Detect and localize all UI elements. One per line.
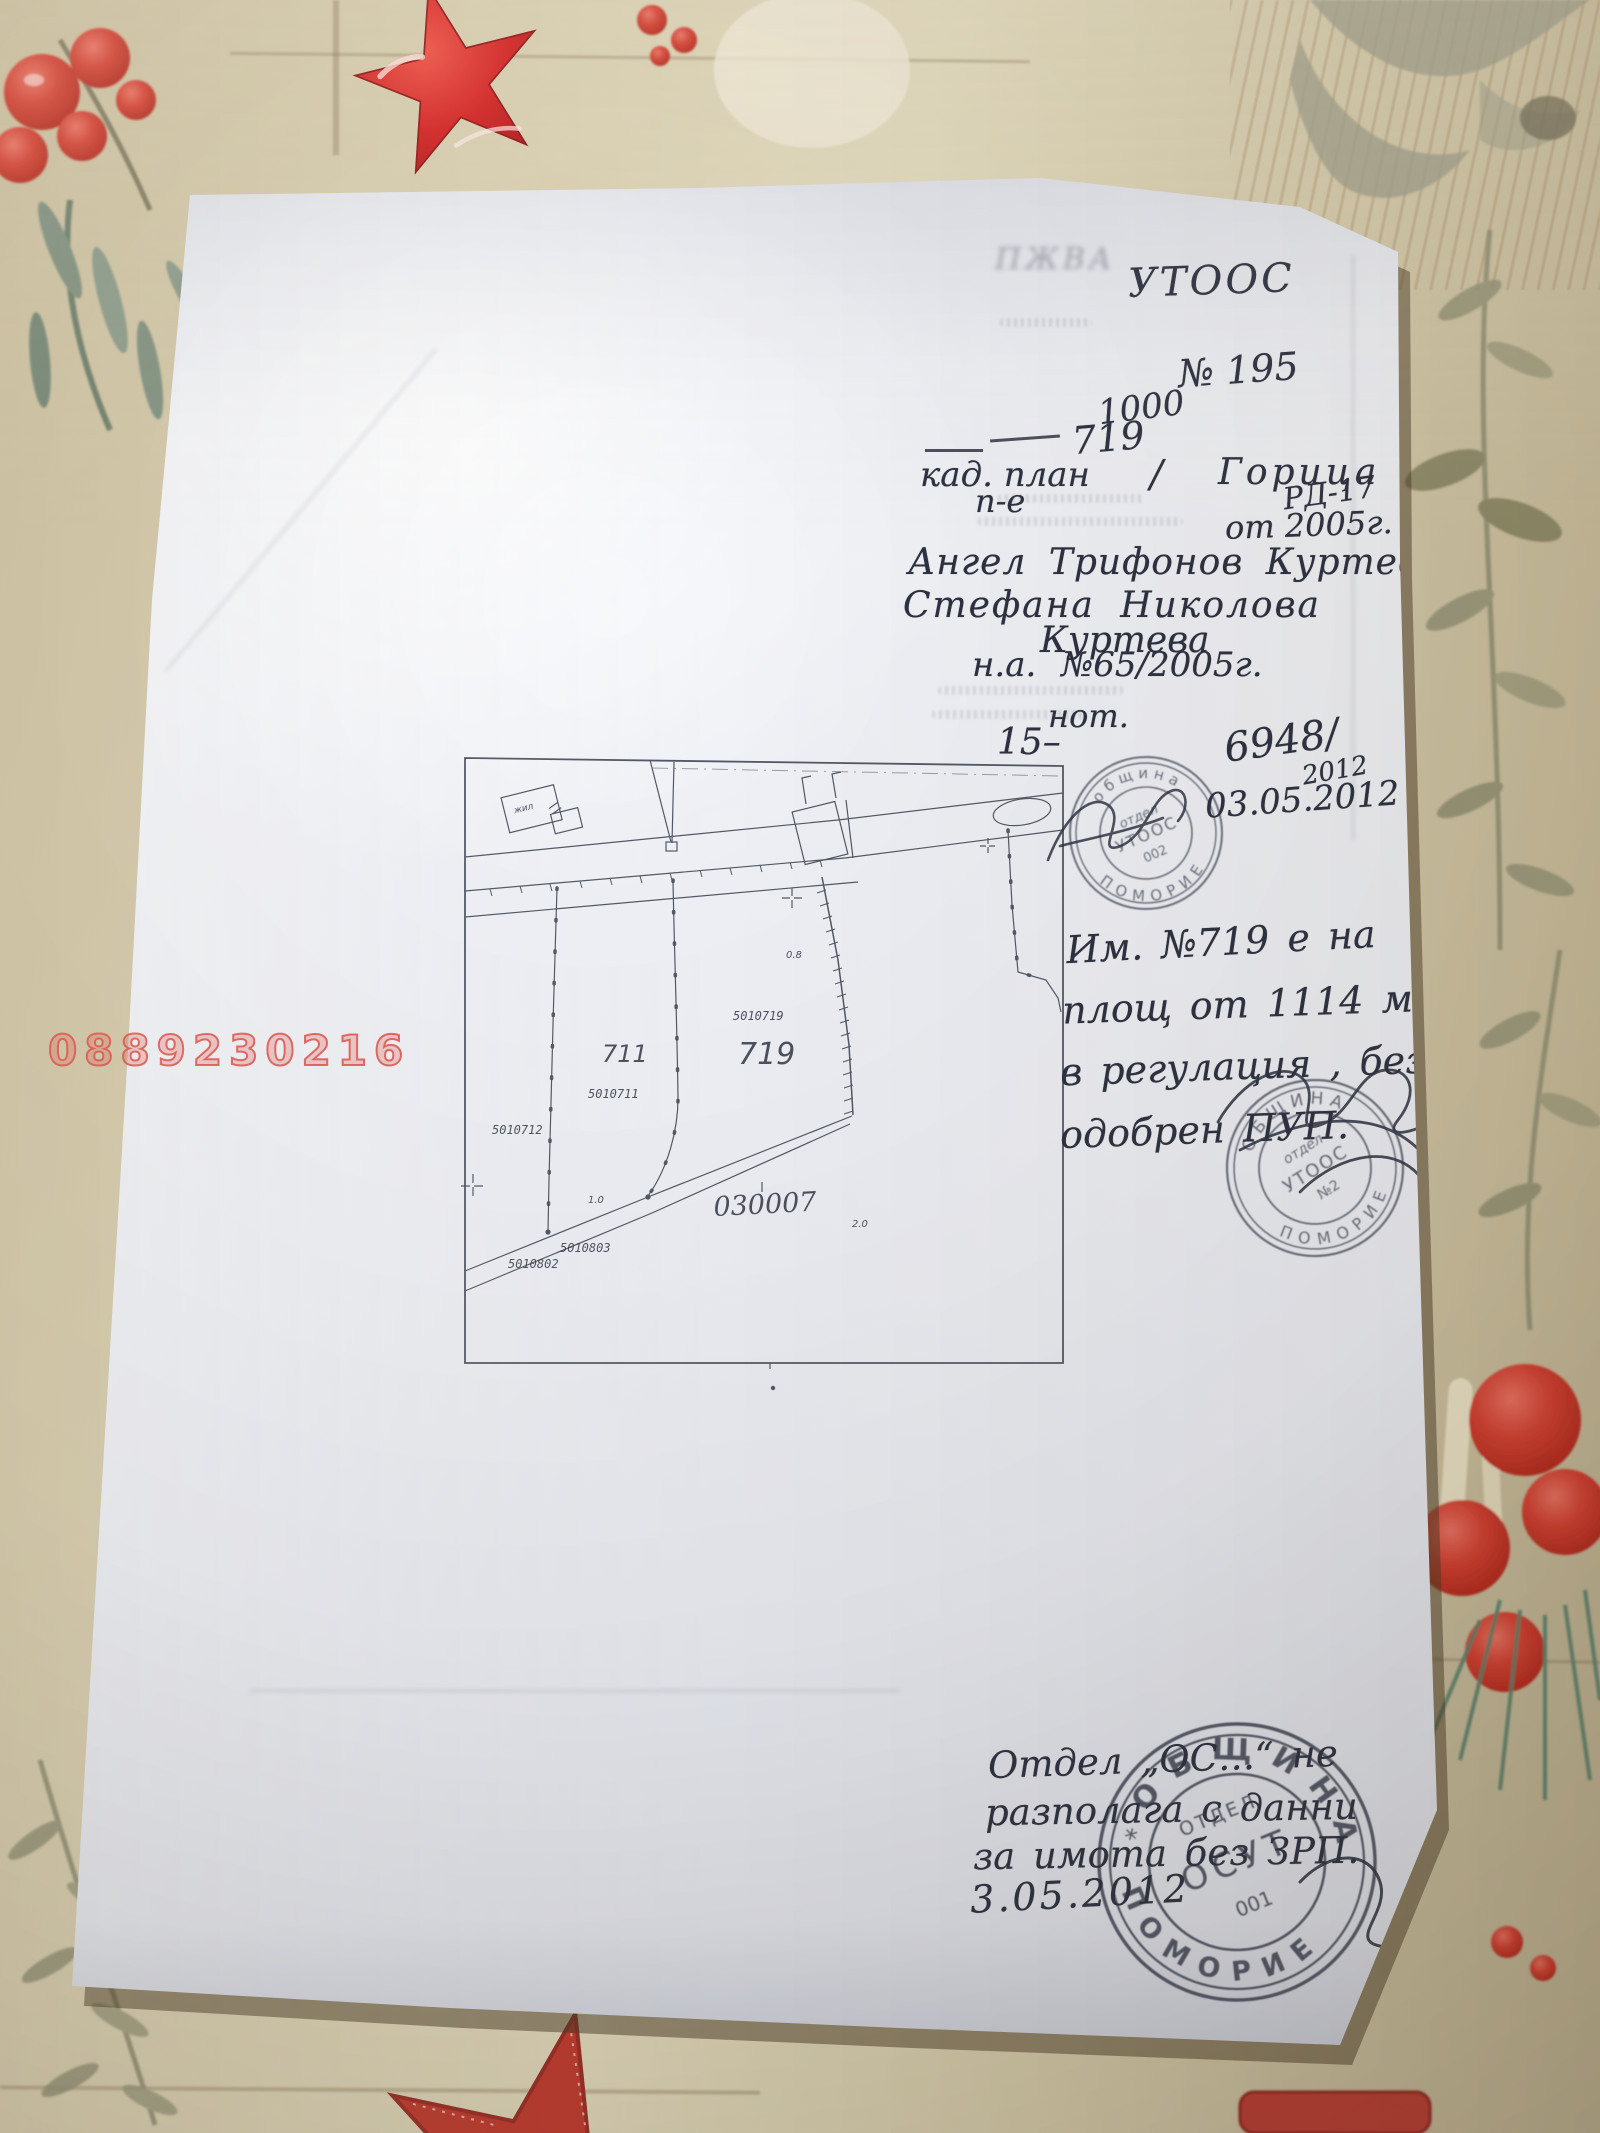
stamp-inner-line3: №2 [1315, 1177, 1343, 1203]
parcel-719-label: 719 [738, 1037, 795, 1072]
from-2005-text: от 2005г. [1224, 503, 1393, 547]
bottom-note-line2: разполага с данни [985, 1785, 1358, 1834]
bridge-structure [792, 772, 853, 865]
owner-name-1: Ангел Трифонов Куртев [908, 542, 1420, 583]
slash-mark: / [1150, 452, 1163, 496]
red-knit-patch [1240, 2092, 1430, 2133]
parcel-711-label: 711 [602, 1040, 648, 1068]
cadastral-map [461, 758, 1063, 1390]
cad-code-5010711: 5010711 [588, 1087, 639, 1101]
dim-1-0: 1.0 [588, 1195, 604, 1206]
stamp-utoos-top: община ПОМОРИЕ отдел УТООС 002 [1058, 745, 1234, 921]
cad-code-5010802: 5010802 [508, 1257, 559, 1271]
dept-utoos-text: УТООС [1127, 255, 1295, 307]
cad-code-5010712: 5010712 [492, 1123, 543, 1137]
dim-0-8: 0.8 [786, 950, 802, 961]
cad-code-5010719: 5010719 [733, 1009, 784, 1023]
overline-dash [925, 449, 983, 452]
number-15: 15– [997, 722, 1061, 763]
building-footprint [501, 780, 582, 844]
doc-number: № 195 [1177, 344, 1300, 396]
building-label: жил [512, 802, 535, 817]
dim-2-0: 2.0 [852, 1219, 868, 1230]
leaf-branches-right [1400, 230, 1600, 1330]
dark-knot-spot [1520, 96, 1576, 140]
area-code-030007: 030007 [713, 1187, 818, 1223]
stamp-inner-line3: 001 [1232, 1885, 1276, 1922]
p-e-text: п-е [975, 482, 1025, 520]
deed-number: н.а. №65/2005г. [972, 645, 1263, 685]
stamp-inner-line3: 002 [1141, 843, 1170, 867]
red-berries-top-left [0, 28, 156, 210]
glossy-red-star [339, 0, 561, 181]
watermark-phone-number: 0889230216 [48, 1026, 410, 1075]
faded-stamp-text: ПЖВА [995, 242, 1116, 277]
red-berries-top-middle [637, 5, 697, 66]
pale-ornament [714, 0, 910, 148]
crosshair-mark [782, 888, 802, 908]
cad-code-5010803: 5010803 [560, 1241, 611, 1255]
photo-scene: 711 719 5010711 5010712 5010719 5010803 … [0, 0, 1600, 2133]
